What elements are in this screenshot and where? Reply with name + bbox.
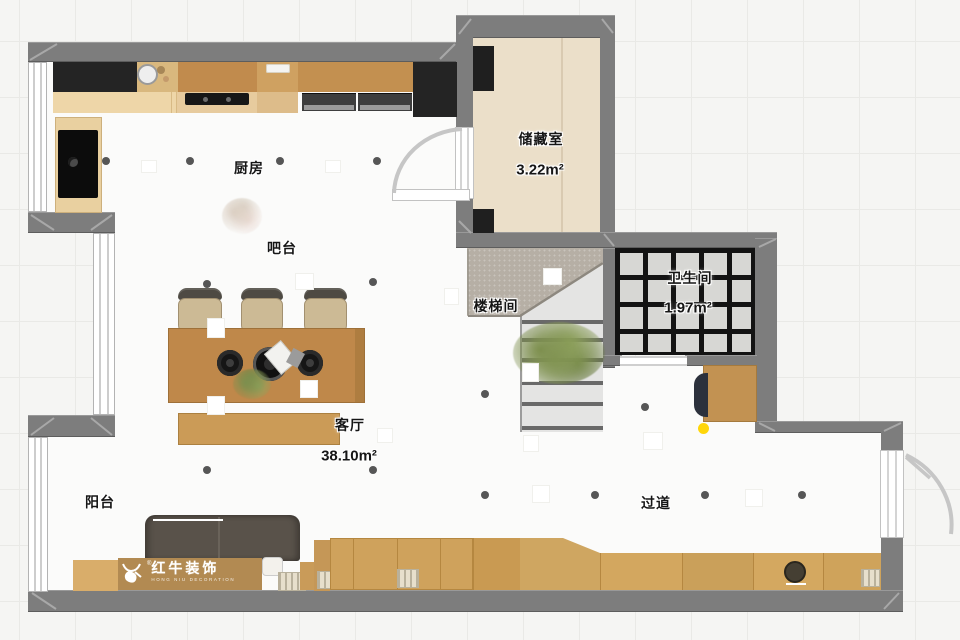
cabinet-divider — [353, 539, 354, 589]
stair-tread — [522, 426, 603, 430]
bowl — [784, 561, 806, 583]
ceiling-light-dot — [591, 491, 599, 499]
room-label-hallway: 过道 — [641, 493, 671, 513]
vent — [295, 273, 314, 290]
counter-divider — [171, 92, 172, 113]
ceiling-light-dot — [186, 157, 194, 165]
ceiling-light-dot — [369, 278, 377, 286]
door-bathroom-threshold — [620, 356, 687, 366]
vent — [141, 160, 157, 173]
kitchen-base-counter-right — [257, 92, 298, 113]
ceiling-light-dot — [276, 157, 284, 165]
room-label-kitchen: 厨房 — [234, 158, 264, 178]
wall-storage-right — [600, 15, 615, 248]
vent — [745, 489, 763, 507]
kitchen-tall-cabinet-black — [413, 62, 457, 117]
sofa-cushion-divider — [218, 517, 220, 559]
brand-bull-icon — [121, 561, 143, 585]
wall-left-jog-lower — [28, 415, 115, 437]
ceiling-light-dot — [481, 390, 489, 398]
balcony-cabinet-left — [73, 560, 118, 591]
vent — [532, 485, 550, 503]
window-living-left — [93, 233, 115, 415]
stair-tread — [522, 402, 603, 406]
room-label-stairwell: 楼梯间 — [474, 296, 519, 316]
storage-cabinet-black — [473, 209, 494, 233]
hall-cabinet — [703, 365, 757, 422]
storage-basket — [861, 569, 880, 587]
cabinet-row-b — [473, 538, 520, 590]
ceiling-light-dot — [102, 157, 110, 165]
ceiling-light-dot — [701, 491, 709, 499]
door-storage-leaf — [392, 189, 470, 201]
accent-dot-yellow — [698, 423, 709, 434]
storage-basket — [397, 569, 419, 588]
cabinet-row-d — [600, 553, 682, 590]
vent — [325, 160, 341, 173]
cabinet-row-e — [682, 553, 753, 590]
fridge-logo — [68, 157, 78, 167]
sofa — [145, 515, 300, 561]
cooktop-burner — [226, 97, 231, 102]
sink-knob — [163, 76, 169, 82]
room-area-living: 38.10m² — [321, 448, 377, 465]
flower-decor — [222, 198, 262, 234]
wall-storage-left — [456, 15, 473, 235]
kitchen-sink — [137, 64, 158, 85]
vent — [207, 396, 225, 415]
table-plant — [233, 369, 271, 399]
vent — [377, 428, 393, 443]
wall-storage-bathroom-band — [456, 232, 777, 248]
door-arc — [906, 455, 952, 534]
vent — [444, 288, 459, 305]
room-label-bar: 吧台 — [267, 238, 297, 258]
room-label-bathroom: 卫生间 — [668, 268, 713, 288]
kitchen-upper-cabinet-c — [298, 62, 413, 92]
bowl-base-line — [786, 583, 806, 585]
ceiling-light-dot — [203, 280, 211, 288]
sink-knob — [157, 66, 165, 74]
kitchen-wall-cabinet-black — [53, 62, 137, 92]
storage-cabinet-black — [473, 46, 494, 91]
brand-name: 红牛装饰 — [151, 561, 235, 576]
ceiling-light-dot — [798, 491, 806, 499]
door-entry-opening — [880, 450, 904, 538]
wall-bottom — [28, 590, 903, 612]
ceiling-light-dot — [481, 491, 489, 499]
kitchen-base-counter — [53, 92, 177, 113]
room-area-storage: 3.22m² — [516, 162, 564, 179]
ceiling-light-dot — [373, 157, 381, 165]
ceiling-light-dot — [203, 466, 211, 474]
cooktop-burner — [203, 97, 208, 102]
vent — [522, 363, 539, 382]
vent — [643, 432, 663, 450]
brand-subtitle: HONG NIU DECORATION — [151, 577, 235, 582]
room-label-living: 客厅 — [335, 415, 365, 435]
vent — [300, 380, 318, 398]
window-kitchen-left — [28, 62, 47, 212]
sofa-accent-line — [153, 519, 223, 521]
wall-top — [28, 42, 457, 62]
vent — [207, 318, 225, 338]
wall-left-jog-upper — [28, 212, 115, 233]
cooktop — [185, 93, 249, 105]
vent — [543, 268, 562, 285]
kitchen-appliance-shelf — [358, 93, 412, 111]
room-label-balcony: 阳台 — [85, 492, 115, 512]
chair — [694, 373, 708, 417]
window-balcony-left — [28, 437, 48, 592]
kitchen-appliance-shelf — [302, 93, 356, 111]
room-label-storage: 储藏室 — [519, 129, 564, 149]
vent — [523, 435, 539, 452]
door-leaf-line — [906, 457, 930, 478]
ceiling-light-dot — [369, 466, 377, 474]
ceiling-light-dot — [641, 403, 649, 411]
bar-table-edge — [355, 329, 364, 402]
floor-plan-canvas: 厨房 吧台 储藏室 3.22m² 楼梯间 卫生间 1.97m² 客厅 38.10… — [0, 0, 960, 640]
wall-bathroom-right — [755, 238, 777, 433]
brand-watermark: ® 红牛装饰 HONG NIU DECORATION — [121, 561, 235, 585]
cabinet-switch-panel — [266, 64, 290, 73]
cabinet-divider — [440, 539, 441, 589]
fridge — [58, 130, 98, 198]
kitchen-upper-cabinet-a — [178, 62, 257, 92]
cabinet-small — [300, 562, 314, 590]
wall-storage-top — [456, 15, 615, 38]
bench — [178, 413, 340, 445]
room-area-bathroom: 1.97m² — [664, 300, 712, 317]
